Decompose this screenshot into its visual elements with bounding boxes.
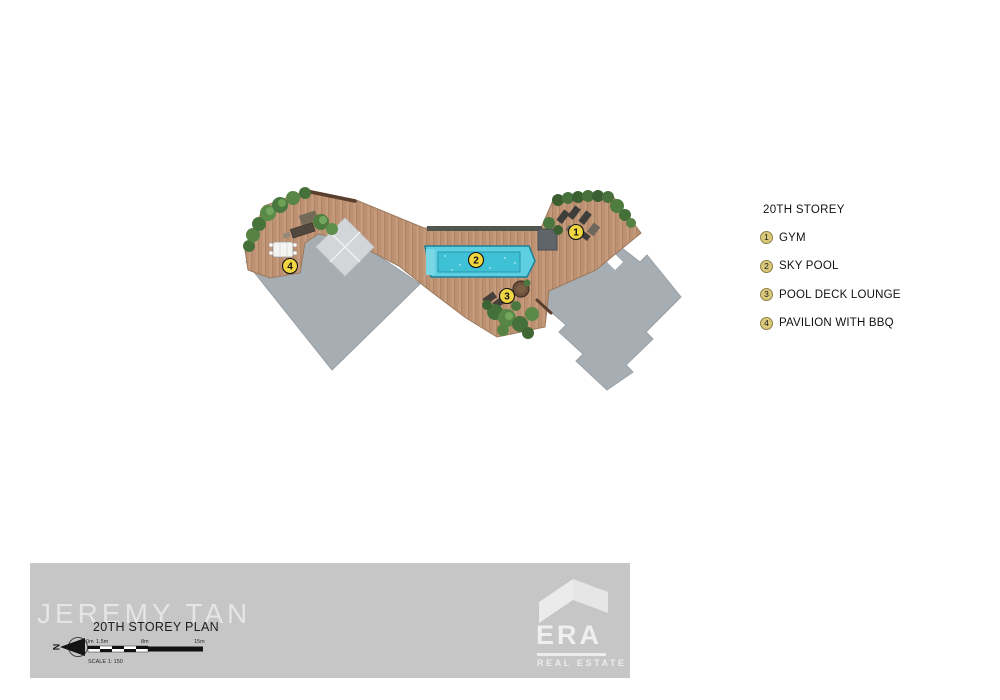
legend-title: 20TH STOREY xyxy=(760,204,960,216)
legend-item-sky-pool: 2 SKY POOL xyxy=(760,260,960,273)
era-logo-wordmark: ERA xyxy=(536,620,602,651)
north-arrow-and-scale-bar: N 0m 1.5m 8m 15m SCALE 1: 150 xyxy=(45,628,215,673)
legend-item-pool-deck-lounge: 3 POOL DECK LOUNGE xyxy=(760,288,960,301)
plan-marker-gym: 1 xyxy=(569,225,584,240)
legend-chip-1: 1 xyxy=(760,231,773,244)
legend-label-sky-pool: SKY POOL xyxy=(779,260,839,272)
legend-label-pavilion: PAVILION WITH BBQ xyxy=(779,317,894,329)
plan-marker-sky-pool-num: 2 xyxy=(473,256,479,267)
plan-marker-pool-deck-lounge-num: 3 xyxy=(504,292,510,303)
legend-chip-3: 3 xyxy=(760,288,773,301)
legend-item-pavilion: 4 PAVILION WITH BBQ xyxy=(760,317,960,330)
plan-marker-pavilion: 4 xyxy=(283,259,298,274)
deck-edge-strip xyxy=(427,226,542,231)
era-logo-divider xyxy=(537,653,606,656)
scale-label-1-5m: 1.5m xyxy=(96,639,109,645)
legend: 20TH STOREY 1 GYM 2 SKY POOL 3 POOL DECK… xyxy=(760,204,960,345)
legend-label-gym: GYM xyxy=(779,232,806,244)
scale-caption: SCALE 1: 150 xyxy=(88,659,123,665)
legend-item-gym: 1 GYM xyxy=(760,231,960,244)
north-label: N xyxy=(52,644,62,651)
scale-bar: 0m 1.5m 8m 15m SCALE 1: 150 xyxy=(86,639,205,665)
era-logo-subtitle: REAL ESTATE xyxy=(537,658,627,668)
scale-label-0m: 0m xyxy=(86,639,94,645)
legend-label-pool-deck-lounge: POOL DECK LOUNGE xyxy=(779,289,901,301)
plan-marker-sky-pool: 2 xyxy=(469,253,484,268)
legend-chip-2: 2 xyxy=(760,260,773,273)
scale-label-15m: 15m xyxy=(194,639,205,645)
era-logo-roof-icon xyxy=(533,574,617,626)
plan-marker-pool-deck-lounge: 3 xyxy=(500,289,515,304)
scale-label-8m: 8m xyxy=(141,639,149,645)
north-arrow: N xyxy=(52,638,88,657)
page: 1 2 3 4 20TH STOREY 1 GYM 2 SKY POOL 3 P… xyxy=(0,0,1000,700)
legend-chip-4: 4 xyxy=(760,317,773,330)
plan-marker-pavilion-num: 4 xyxy=(287,262,293,273)
plan-marker-gym-num: 1 xyxy=(573,228,579,239)
